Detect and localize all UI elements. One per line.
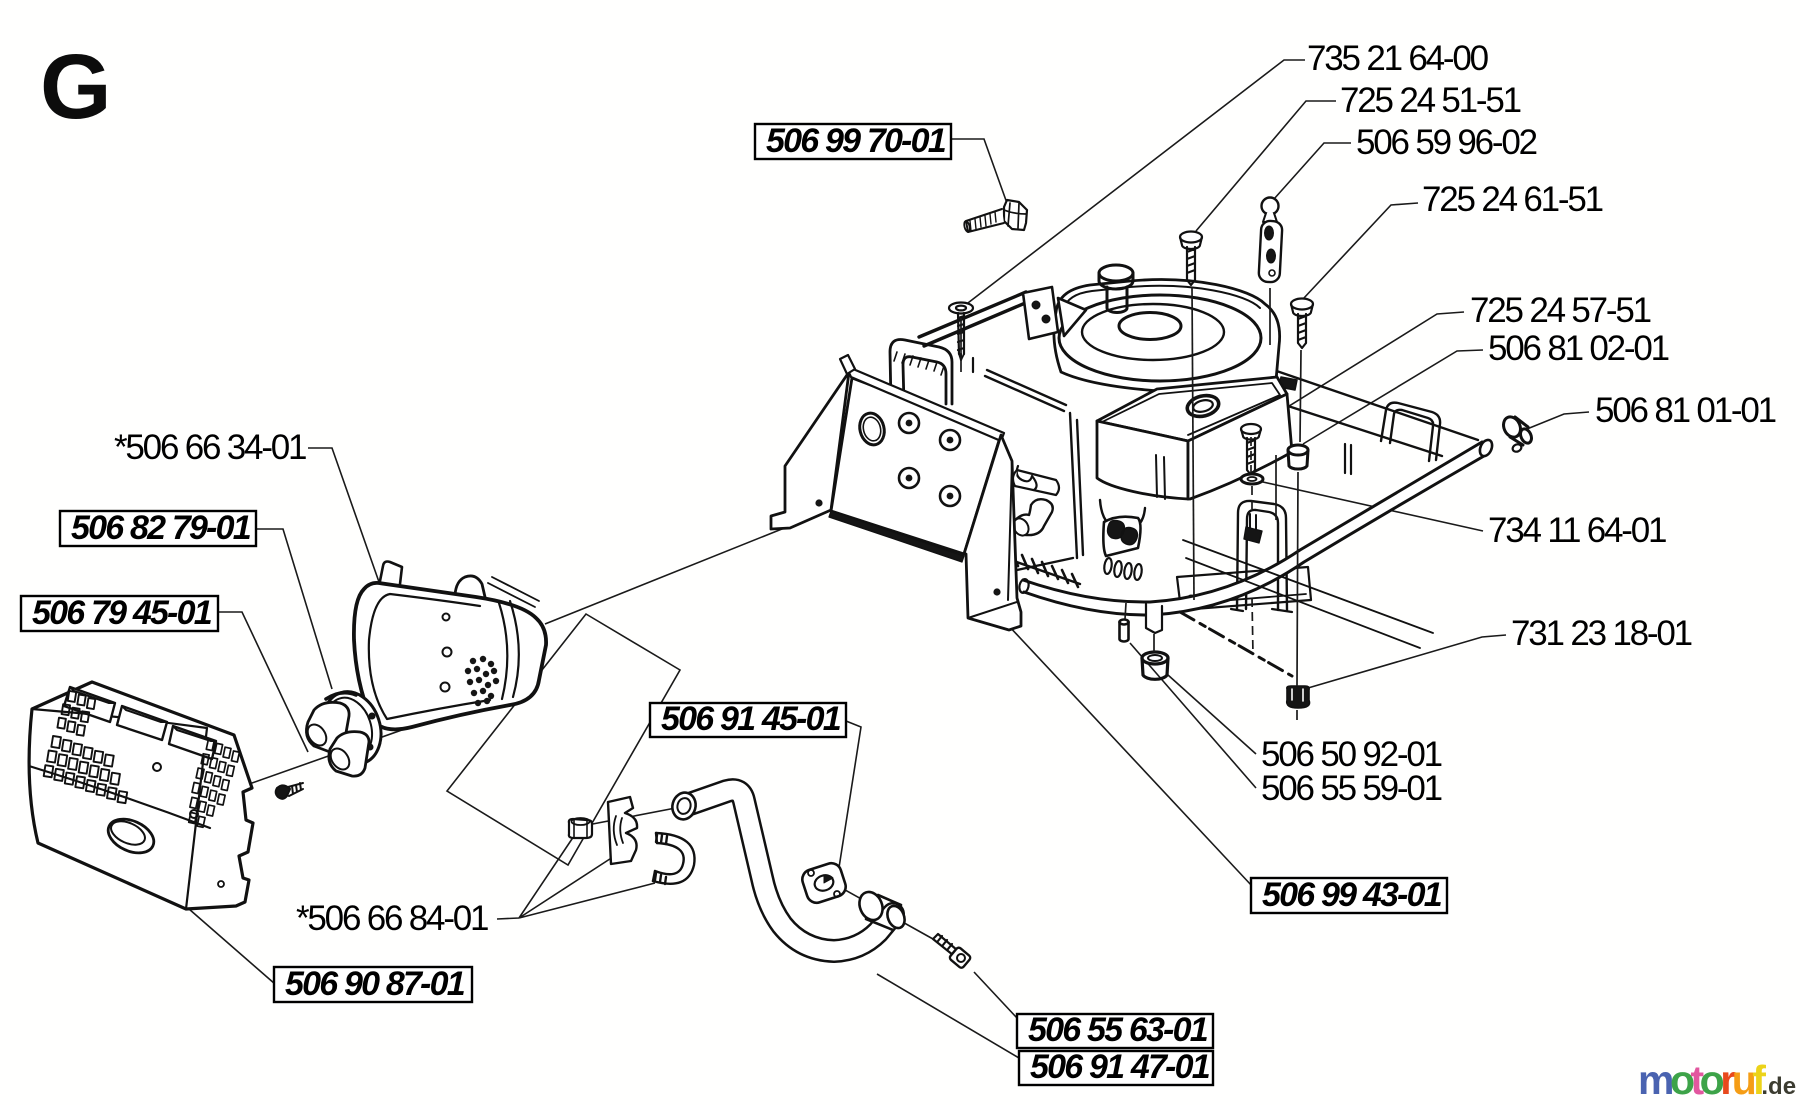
svg-text:735 21 64-00: 735 21 64-00 bbox=[1307, 39, 1489, 78]
svg-text:506 81 01-01: 506 81 01-01 bbox=[1595, 391, 1776, 430]
svg-text:725 24 51-51: 725 24 51-51 bbox=[1340, 81, 1521, 120]
svg-text:734 11 64-01: 734 11 64-01 bbox=[1488, 511, 1666, 550]
svg-text:506 91 45-01: 506 91 45-01 bbox=[661, 700, 841, 738]
svg-text:G: G bbox=[40, 36, 112, 138]
svg-text:725 24 57-51: 725 24 57-51 bbox=[1470, 291, 1651, 330]
svg-text:506 91 47-01: 506 91 47-01 bbox=[1030, 1048, 1210, 1086]
svg-text:506 99 43-01: 506 99 43-01 bbox=[1262, 876, 1442, 914]
svg-text:506 79 45-01: 506 79 45-01 bbox=[32, 594, 212, 632]
svg-text:506 81 02-01: 506 81 02-01 bbox=[1488, 329, 1669, 368]
svg-text:506 99 70-01: 506 99 70-01 bbox=[766, 122, 946, 160]
svg-text:*506 66 34-01: *506 66 34-01 bbox=[114, 428, 306, 467]
svg-text:506 55 59-01: 506 55 59-01 bbox=[1261, 769, 1442, 808]
svg-text:506 59 96-02: 506 59 96-02 bbox=[1356, 123, 1537, 162]
svg-text:506 82 79-01: 506 82 79-01 bbox=[71, 509, 251, 547]
svg-text:725 24 61-51: 725 24 61-51 bbox=[1422, 180, 1603, 219]
svg-text:506 55 63-01: 506 55 63-01 bbox=[1028, 1011, 1208, 1049]
svg-text:731 23 18-01: 731 23 18-01 bbox=[1511, 614, 1692, 653]
svg-text:*506 66 84-01: *506 66 84-01 bbox=[296, 899, 488, 938]
svg-text:506 90 87-01: 506 90 87-01 bbox=[285, 965, 465, 1003]
